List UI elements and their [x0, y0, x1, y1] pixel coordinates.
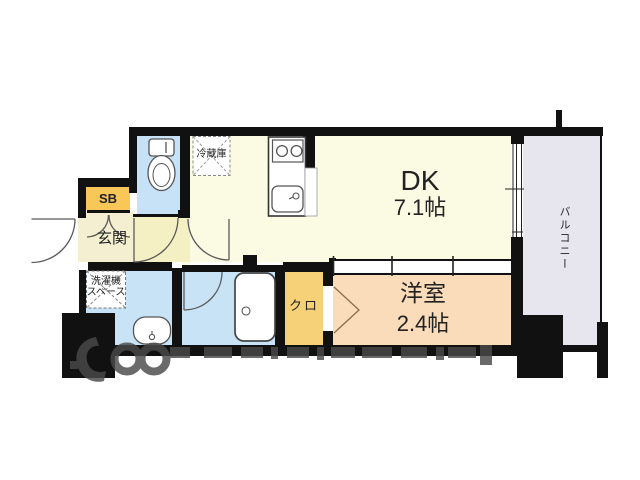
floorplan-canvas: DK 7.1帖 洋室 2.4帖 バルコニー 玄関 SB クロ 洗濯機 スペース … — [0, 0, 640, 480]
wall-washroom-bathroom — [172, 268, 182, 345]
toilet-room-floor — [137, 133, 180, 214]
dk-room-area: 7.1帖 — [350, 196, 490, 220]
wall-top — [129, 127, 603, 136]
laundry-space-label-line2: スペース — [82, 288, 130, 299]
bathroom-floor — [182, 271, 275, 345]
hallway-floor — [133, 215, 190, 262]
wall-toilet-right — [180, 133, 190, 217]
sliding-partition — [333, 259, 511, 275]
wall-balcony-bottom — [563, 345, 600, 352]
refrigerator-label: 冷蔵庫 — [190, 150, 233, 161]
wall-sb-bottom — [87, 210, 130, 213]
wall-kitchen-right — [303, 131, 315, 170]
entrance-label: 玄関 — [85, 231, 139, 247]
wall-closet-top — [283, 262, 335, 272]
shoe-box-label: SB — [86, 192, 130, 206]
window-dk-balcony — [511, 144, 523, 237]
wall-closet-stub-bottom — [323, 331, 333, 345]
balcony-right-edge — [600, 136, 602, 322]
wall-balcony-block — [517, 315, 563, 378]
balcony-label: バルコニー — [551, 196, 569, 280]
wall-stub — [178, 210, 190, 218]
western-room-label: 洋室 — [353, 281, 493, 306]
wall-bottom — [86, 345, 523, 356]
wall-washroom-top — [88, 262, 172, 271]
dk-room-label: DK — [350, 166, 490, 196]
wall-window-cap — [511, 135, 524, 144]
wall-bathroom-top — [182, 265, 283, 272]
laundry-space-label: 洗濯機 スペース — [82, 277, 130, 299]
entrance-door-arc — [32, 219, 76, 263]
balcony-divider-tick — [556, 110, 562, 127]
wall-closet-stub-top — [323, 272, 333, 286]
western-room-area: 2.4帖 — [353, 312, 493, 336]
wall-sb-left — [78, 178, 86, 218]
closet-label: クロ — [281, 299, 327, 313]
